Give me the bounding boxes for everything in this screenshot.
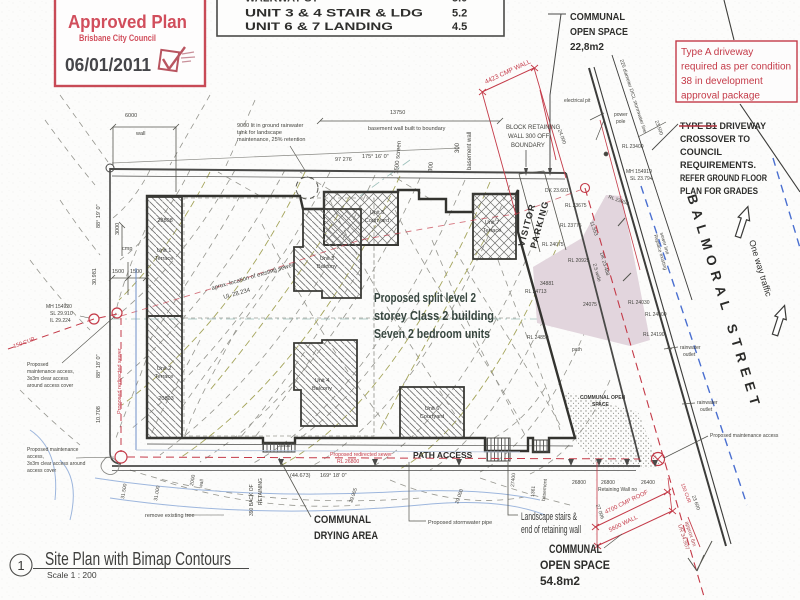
svg-text:around access cover: around access cover xyxy=(27,383,73,389)
svg-text:remove existing tree: remove existing tree xyxy=(145,513,195,519)
svg-text:RL 26800: RL 26800 xyxy=(337,459,359,465)
svg-text:tank for landscape: tank for landscape xyxy=(237,130,282,136)
svg-text:25935: 25935 xyxy=(278,443,291,448)
svg-text:access,: access, xyxy=(27,454,44,460)
svg-text:cmp: cmp xyxy=(122,246,132,252)
svg-text:OPEN SPACE: OPEN SPACE xyxy=(540,560,610,572)
svg-text:COMMUNAL: COMMUNAL xyxy=(570,12,625,23)
svg-text:26800: 26800 xyxy=(601,480,615,486)
svg-text:10.708: 10.708 xyxy=(96,406,102,423)
svg-text:Terrace: Terrace xyxy=(483,228,502,234)
svg-text:Approved Plan: Approved Plan xyxy=(68,11,187,32)
svg-text:RL 23400: RL 23400 xyxy=(622,144,644,150)
svg-text:WALKWAY ST: WALKWAY ST xyxy=(245,0,319,5)
svg-text:UNIT 3 & 4 STAIR & LDG: UNIT 3 & 4 STAIR & LDG xyxy=(245,8,423,20)
svg-text:WALL 300 OFF: WALL 300 OFF xyxy=(508,134,550,140)
svg-text:5.2: 5.2 xyxy=(452,8,467,20)
svg-text:basement wall: basement wall xyxy=(467,132,473,170)
svg-text:outlet: outlet xyxy=(683,352,696,358)
svg-text:UNIT 6 & 7 LANDING: UNIT 6 & 7 LANDING xyxy=(245,21,393,33)
svg-text:Terrace: Terrace xyxy=(155,374,174,380)
svg-text:REFER GROUND FLOOR: REFER GROUND FLOOR xyxy=(680,173,767,183)
svg-text:3x3m clear access: 3x3m clear access xyxy=(27,376,69,382)
svg-text:Landscape stairs &: Landscape stairs & xyxy=(521,511,577,523)
svg-text:REQUIREMENTS.: REQUIREMENTS. xyxy=(680,160,756,170)
svg-text:38 in development: 38 in development xyxy=(681,76,763,87)
svg-text:Terrace: Terrace xyxy=(155,256,174,262)
svg-text:Unit 2: Unit 2 xyxy=(157,366,172,372)
svg-text:Seven 2 bedroom units: Seven 2 bedroom units xyxy=(374,327,490,341)
svg-text:Courtyard: Courtyard xyxy=(365,218,390,224)
svg-text:Proposed: Proposed xyxy=(27,362,49,368)
svg-text:27400: 27400 xyxy=(510,473,517,488)
svg-text:Site Plan with Bimap Contours: Site Plan with Bimap Contours xyxy=(45,549,231,569)
svg-text:Type A driveway: Type A driveway xyxy=(681,47,753,58)
svg-text:CROSSOVER TO: CROSSOVER TO xyxy=(680,134,750,144)
svg-text:BLOCK RETAINING: BLOCK RETAINING xyxy=(506,125,561,131)
svg-text:electrical pit: electrical pit xyxy=(564,98,591,104)
svg-text:RL 24000: RL 24000 xyxy=(645,312,667,318)
svg-text:SL 29.910: SL 29.910 xyxy=(50,311,73,317)
svg-text:Balcony: Balcony xyxy=(312,386,332,392)
svg-text:Proposed maintenance: Proposed maintenance xyxy=(27,447,79,453)
svg-text:approval package: approval package xyxy=(681,91,760,102)
svg-text:6000: 6000 xyxy=(125,113,137,119)
svg-text:rainwater: rainwater xyxy=(697,400,718,406)
svg-text:DRYING AREA: DRYING AREA xyxy=(314,530,378,542)
svg-text:path: path xyxy=(572,347,582,353)
svg-text:COMMUNAL: COMMUNAL xyxy=(314,514,371,526)
svg-text:06/01/2011: 06/01/2011 xyxy=(65,55,151,75)
svg-text:RL 24030: RL 24030 xyxy=(628,300,650,306)
svg-text:storey Class 2 building: storey Class 2 building xyxy=(374,309,494,323)
svg-text:300: 300 xyxy=(428,161,435,172)
svg-text:88° 19' 0": 88° 19' 0" xyxy=(96,204,102,228)
svg-text:maintenance access,: maintenance access, xyxy=(27,369,74,375)
svg-text:SL 23.794: SL 23.794 xyxy=(630,176,653,182)
svg-text:Courtyard: Courtyard xyxy=(420,414,445,420)
svg-text:DK 23.601: DK 23.601 xyxy=(545,188,569,194)
svg-text:COMMUNAL OPEN: COMMUNAL OPEN xyxy=(580,395,626,401)
svg-text:COMMUNAL: COMMUNAL xyxy=(549,544,602,556)
svg-text:RL 24075: RL 24075 xyxy=(542,242,564,248)
svg-text:Balcony: Balcony xyxy=(317,264,337,270)
svg-text:RL 23775: RL 23775 xyxy=(560,223,582,229)
svg-text:88° 18' 0": 88° 18' 0" xyxy=(96,354,102,378)
svg-text:1: 1 xyxy=(17,558,24,573)
svg-text:OPEN SPACE: OPEN SPACE xyxy=(570,27,628,38)
svg-text:54.8m2: 54.8m2 xyxy=(540,576,580,588)
svg-text:MH 154920: MH 154920 xyxy=(46,304,72,310)
svg-text:BOUNDARY: BOUNDARY xyxy=(511,143,545,149)
svg-text:basement wall built to boundar: basement wall built to boundary xyxy=(368,126,446,132)
svg-text:maintenance, 25% retention: maintenance, 25% retention xyxy=(237,137,306,143)
svg-text:30.981: 30.981 xyxy=(92,268,98,285)
svg-text:175° 16' 0": 175° 16' 0" xyxy=(362,154,389,160)
svg-text:Unit 5: Unit 5 xyxy=(370,210,385,216)
svg-text:COUNCIL: COUNCIL xyxy=(680,147,723,157)
svg-text:(44.673): (44.673) xyxy=(290,473,311,479)
svg-text:1361: 1361 xyxy=(530,485,537,497)
svg-text:20803: 20803 xyxy=(158,396,174,402)
svg-text:rainwater: rainwater xyxy=(680,345,701,351)
svg-text:1500: 1500 xyxy=(112,269,124,275)
svg-text:RL 24850: RL 24850 xyxy=(527,335,549,341)
svg-text:Proposed stormwater pipe: Proposed stormwater pipe xyxy=(428,520,492,526)
svg-text:Proposed maintenance access: Proposed maintenance access xyxy=(710,433,779,439)
svg-text:required as per condition: required as per condition xyxy=(681,62,791,73)
svg-text:RL 24190: RL 24190 xyxy=(643,332,665,338)
svg-text:IL 29.224: IL 29.224 xyxy=(50,318,71,324)
svg-text:pole: pole xyxy=(616,119,626,125)
svg-text:Unit 1: Unit 1 xyxy=(157,248,172,254)
svg-text:power: power xyxy=(614,112,628,118)
svg-text:PATH ACCESS: PATH ACCESS xyxy=(413,450,473,460)
svg-text:RL 23675: RL 23675 xyxy=(565,203,587,209)
svg-text:4.5: 4.5 xyxy=(452,21,467,33)
svg-text:5.0: 5.0 xyxy=(452,0,467,5)
svg-text:MH 154919: MH 154919 xyxy=(626,169,652,175)
svg-text:3000: 3000 xyxy=(115,223,121,235)
svg-text:390 BACK OF: 390 BACK OF xyxy=(249,484,255,516)
svg-text:22,8m2: 22,8m2 xyxy=(570,42,604,53)
svg-text:169° 18' 0": 169° 18' 0" xyxy=(320,473,347,479)
svg-text:Unit 4: Unit 4 xyxy=(315,378,330,384)
svg-text:300: 300 xyxy=(455,142,461,153)
svg-text:9000 lit in ground rainwater: 9000 lit in ground rainwater xyxy=(237,123,304,129)
svg-text:Proposed redirected sewer: Proposed redirected sewer xyxy=(117,348,123,414)
svg-text:26800: 26800 xyxy=(572,480,586,486)
svg-text:Retaining Wall no: Retaining Wall no xyxy=(598,487,637,493)
svg-text:24075: 24075 xyxy=(583,302,597,308)
svg-text:RL 24713: RL 24713 xyxy=(525,289,547,295)
svg-text:Brisbane City Council: Brisbane City Council xyxy=(79,33,156,44)
svg-text:RL 20925: RL 20925 xyxy=(568,258,590,264)
svg-text:3x3m clear access around: 3x3m clear access around xyxy=(27,461,86,467)
svg-text:RETAINING: RETAINING xyxy=(258,478,264,505)
svg-text:13750: 13750 xyxy=(390,110,405,116)
svg-text:PLAN FOR GRADES: PLAN FOR GRADES xyxy=(680,186,758,196)
svg-text:26400: 26400 xyxy=(641,480,655,486)
svg-text:SPACE: SPACE xyxy=(592,402,610,408)
svg-text:Unit 6: Unit 6 xyxy=(425,406,440,412)
svg-text:Proposed split level 2: Proposed split level 2 xyxy=(374,291,476,305)
svg-text:end of retaining wall: end of retaining wall xyxy=(521,524,581,536)
svg-text:Unit 7: Unit 7 xyxy=(485,220,500,226)
svg-text:28808: 28808 xyxy=(157,218,173,224)
svg-text:34881: 34881 xyxy=(540,281,554,287)
svg-text:access cover: access cover xyxy=(27,468,57,474)
svg-text:Scale 1 : 200: Scale 1 : 200 xyxy=(47,570,97,580)
svg-text:Unit 3: Unit 3 xyxy=(320,256,335,262)
svg-text:outlet: outlet xyxy=(700,407,713,413)
svg-text:Proposed redirected sewer: Proposed redirected sewer xyxy=(330,452,392,458)
svg-text:97 276: 97 276 xyxy=(335,157,352,163)
svg-text:wall: wall xyxy=(135,131,145,137)
